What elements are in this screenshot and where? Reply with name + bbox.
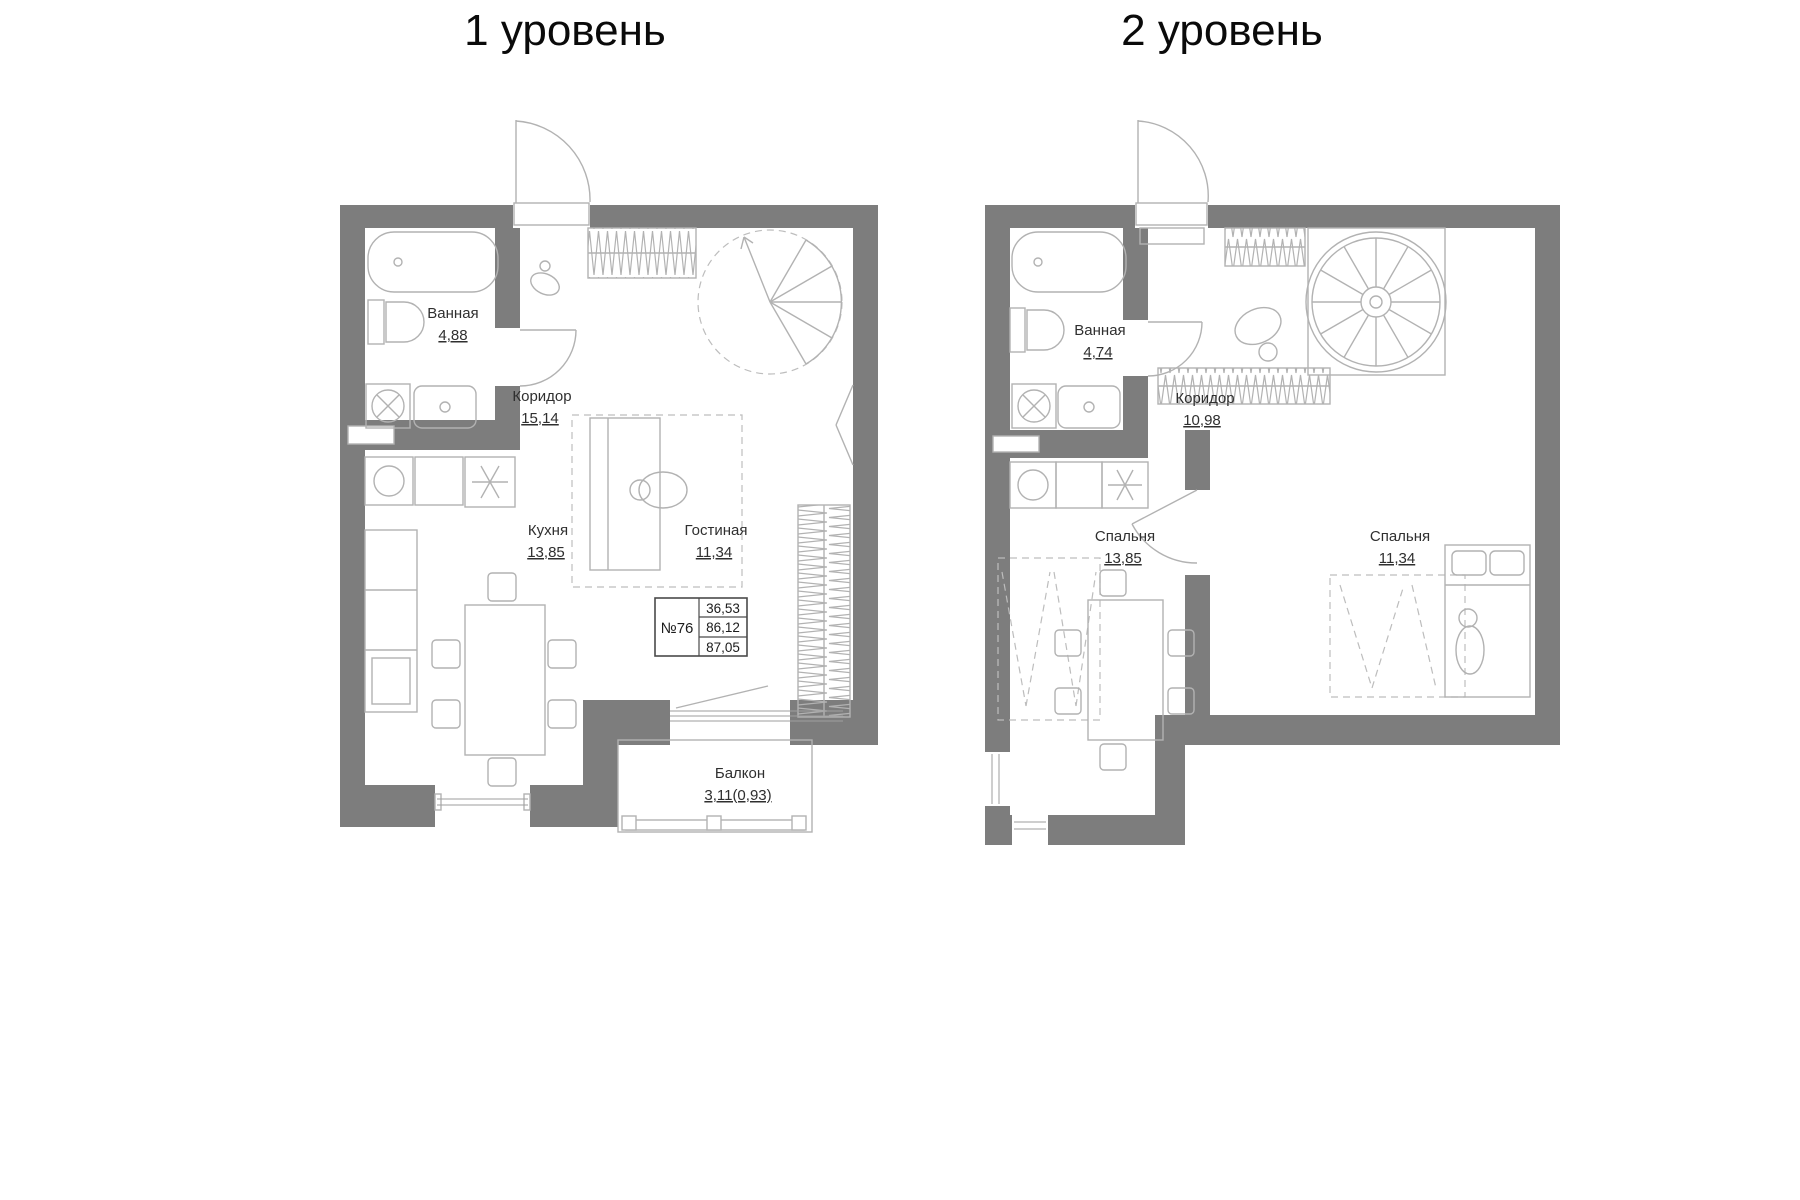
- wall-segment: [340, 205, 513, 228]
- room-label-corridor: Коридор: [512, 388, 571, 405]
- stair-tread: [770, 266, 832, 302]
- wardrobe-mark: [1026, 572, 1050, 706]
- door-threshold: [514, 203, 589, 225]
- wall-segment: [340, 785, 435, 827]
- washing-machine-icon: [1012, 384, 1056, 428]
- toilet-icon: [1010, 308, 1064, 352]
- stair-tread: [1321, 270, 1363, 295]
- room-label-bathroom: Ванная: [1074, 322, 1125, 339]
- person-icon: [527, 261, 563, 299]
- door-threshold: [1136, 203, 1207, 225]
- sink-basin: [1058, 386, 1120, 428]
- wardrobe-mark: [1412, 585, 1436, 688]
- table-top: [465, 605, 545, 755]
- person-body: [527, 269, 563, 300]
- bathtub-icon: [1012, 232, 1126, 292]
- table-top: [1088, 600, 1163, 740]
- stair-tread: [1389, 310, 1431, 335]
- sink-drain: [440, 402, 450, 412]
- utility-sink: [1018, 470, 1048, 500]
- wardrobe-mark: [1076, 572, 1096, 706]
- living-zone-outline: [572, 415, 742, 587]
- room-area-bathroom: 4,88: [438, 327, 467, 344]
- level1-walls: [340, 205, 878, 827]
- window-casement: [836, 425, 853, 465]
- cabinet-inner: [372, 658, 410, 704]
- stair-tread: [1344, 247, 1369, 289]
- person-icon: [639, 472, 687, 508]
- chair: [1100, 744, 1126, 770]
- wall-segment: [1185, 430, 1210, 490]
- chair: [1100, 570, 1126, 596]
- person-body: [1229, 300, 1287, 351]
- area-living-value: 36,53: [706, 601, 740, 616]
- room-area-corridor: 15,14: [521, 410, 559, 427]
- wall-segment: [1208, 205, 1560, 228]
- floor-plan-page: 1 уровень 2 уровень: [0, 0, 1800, 1200]
- spiral-staircase-icon: [1306, 228, 1446, 375]
- floor-plan-level-2: Ванная 4,74 Коридор 10,98 Спальня 13,85 …: [985, 120, 1560, 845]
- chair: [432, 640, 460, 668]
- chair: [488, 573, 516, 601]
- bathtub-icon: [368, 232, 498, 292]
- window-jamb: [435, 794, 441, 810]
- bed-pillow: [1452, 551, 1486, 575]
- chair: [1055, 630, 1081, 656]
- wardrobe-dashed-icon: [998, 558, 1100, 720]
- stair-tread: [1321, 310, 1363, 335]
- balcony-post: [792, 816, 806, 830]
- room-label-bedroom2: Спальня: [1370, 528, 1430, 545]
- window-casement: [836, 385, 853, 425]
- duct-shaft: [993, 436, 1039, 452]
- wall-segment: [985, 205, 1010, 752]
- door-leaf: [1132, 490, 1197, 524]
- window-jamb: [524, 794, 530, 810]
- room-area-corridor: 10,98: [1183, 412, 1221, 429]
- toilet-bowl: [386, 302, 424, 342]
- wall-segment: [495, 228, 520, 328]
- left-window-icon: [992, 754, 999, 804]
- chair: [548, 640, 576, 668]
- room-area-balcony: 3,11(0,93): [704, 787, 771, 804]
- person-icon: [630, 480, 650, 500]
- counter-unit: [1010, 462, 1056, 508]
- wardrobe-mark: [1372, 585, 1404, 688]
- stair-tread: [1389, 270, 1431, 295]
- room-label-balcony: Балкон: [715, 765, 765, 782]
- stair-tread: [770, 302, 832, 338]
- stair-tread: [770, 302, 806, 364]
- wardrobe-mark: [1340, 585, 1372, 688]
- chair: [488, 758, 516, 786]
- bathroom-door-icon: [520, 330, 576, 386]
- area-main-value: 86,12: [706, 620, 740, 635]
- wall-segment: [340, 205, 365, 827]
- balcony-post: [707, 816, 721, 830]
- wardrobe-hatch-icon: [588, 228, 696, 278]
- room-area-kitchen: 13,85: [527, 544, 565, 561]
- wall-segment: [853, 205, 878, 745]
- room-label-kitchen: Кухня: [528, 522, 568, 539]
- sofa-icon: [572, 415, 742, 587]
- stair-tread: [1384, 247, 1409, 289]
- floor-plans-drawing: №76 36,53 86,12 87,05 Ванная 4,88 Коридо…: [0, 0, 1800, 1200]
- balcony-door-leaf: [676, 686, 768, 708]
- wall-segment: [618, 700, 670, 745]
- toilet-icon: [368, 300, 424, 344]
- wall-segment: [1155, 715, 1560, 745]
- chair: [548, 700, 576, 728]
- stair-tread: [1384, 315, 1409, 357]
- spiral-staircase-icon: [698, 230, 842, 374]
- door-landing: [1140, 228, 1204, 244]
- counter-unit: [365, 457, 413, 505]
- wall-segment: [1123, 376, 1148, 430]
- toilet-tank: [1010, 308, 1025, 352]
- counter-unit: [1056, 462, 1102, 508]
- wall-segment: [1123, 228, 1148, 320]
- wall-segment: [1535, 205, 1560, 715]
- level2-walls: [985, 205, 1560, 845]
- person-head: [540, 261, 550, 271]
- kitchen-counter-icon: [365, 457, 515, 712]
- toilet-bowl: [1027, 310, 1064, 350]
- room-area-bathroom: 4,74: [1083, 344, 1112, 361]
- bathtub-outline: [1012, 232, 1126, 292]
- person-icon: [1459, 609, 1477, 627]
- bottom-window-icon: [1014, 822, 1046, 829]
- bottom-window-icon: [435, 794, 530, 810]
- room-area-bedroom1: 13,85: [1104, 550, 1142, 567]
- wall-segment: [1185, 575, 1210, 715]
- kitchen-sink: [374, 466, 404, 496]
- area-total-value: 87,05: [706, 640, 740, 655]
- room-label-corridor: Коридор: [1175, 390, 1234, 407]
- bathtub-drain: [394, 258, 402, 266]
- stair-arrow-head: [741, 237, 744, 249]
- bathtub-drain: [1034, 258, 1042, 266]
- window-opening-icon: [836, 385, 853, 465]
- apartment-info-box: №76 36,53 86,12 87,05: [655, 598, 747, 656]
- bathroom-sink-icon: [1058, 386, 1120, 428]
- entrance-door-icon: [514, 120, 590, 225]
- door-swing-arc: [1138, 121, 1208, 202]
- utility-counter-icon: [1010, 462, 1148, 508]
- apartment-number: №76: [661, 620, 694, 637]
- person-icon: [1229, 300, 1287, 361]
- chair: [432, 700, 460, 728]
- wall-segment: [583, 700, 618, 827]
- stair-tread: [770, 240, 806, 302]
- entrance-door-icon: [1136, 120, 1208, 244]
- wall-segment: [1048, 815, 1185, 845]
- person-head: [1259, 343, 1277, 361]
- bed-icon: [1445, 545, 1530, 697]
- room-area-bedroom2: 11,34: [1379, 550, 1415, 567]
- wall-segment: [985, 815, 1012, 845]
- duct-shaft: [348, 426, 394, 444]
- stair-arrow: [744, 237, 770, 302]
- kitchen-cabinets: [365, 530, 417, 712]
- room-label-bathroom: Ванная: [427, 305, 478, 322]
- bathtub-outline: [368, 232, 498, 292]
- door-swing-arc: [516, 121, 590, 202]
- door-swing-arc: [520, 330, 576, 386]
- dining-table-icon: [432, 573, 576, 786]
- bed-pillow: [1490, 551, 1524, 575]
- wall-segment: [590, 205, 878, 228]
- room-label-bedroom1: Спальня: [1095, 528, 1155, 545]
- wardrobe-outline: [998, 558, 1100, 720]
- person-icon: [1456, 626, 1484, 674]
- room-label-living: Гостиная: [685, 522, 748, 539]
- wardrobe-hatch-icon: [1225, 228, 1305, 266]
- balcony-post: [622, 816, 636, 830]
- stair-hub: [1361, 287, 1391, 317]
- room-area-living: 11,34: [696, 544, 732, 561]
- closet-hatch-icon: [798, 505, 850, 717]
- floor-plan-level-1: №76 36,53 86,12 87,05 Ванная 4,88 Коридо…: [340, 120, 878, 832]
- bed-frame: [1445, 545, 1530, 697]
- sink-drain: [1084, 402, 1094, 412]
- stair-tread: [1344, 315, 1369, 357]
- stair-hub-center: [1370, 296, 1382, 308]
- wardrobe-mark: [1054, 572, 1076, 706]
- counter-unit: [415, 457, 463, 505]
- toilet-tank: [368, 300, 384, 344]
